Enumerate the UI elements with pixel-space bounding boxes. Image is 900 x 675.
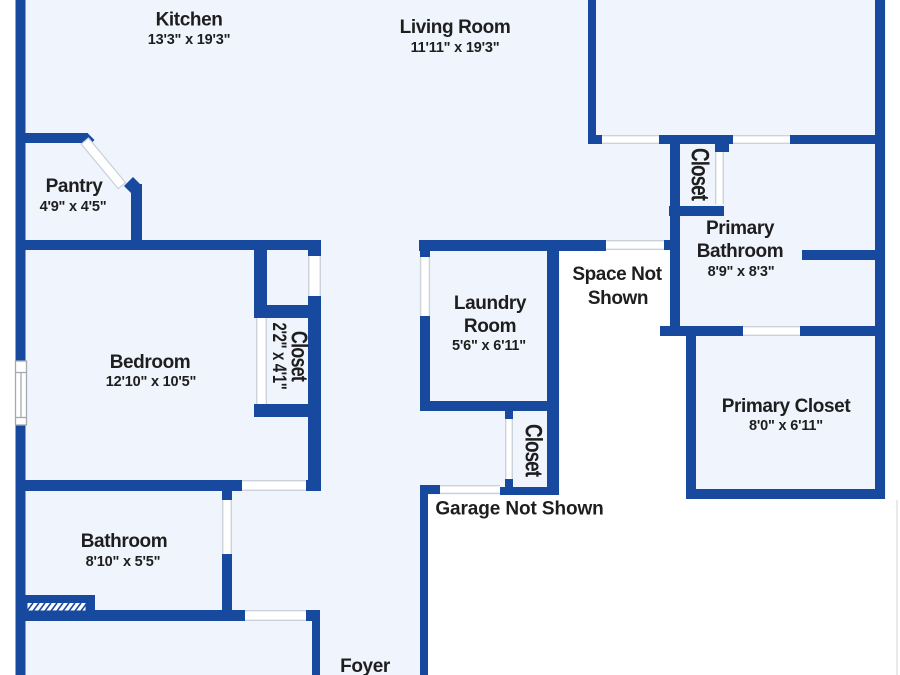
- svg-text:5'6" x 6'11": 5'6" x 6'11": [452, 338, 526, 354]
- svg-text:Foyer: Foyer: [340, 656, 391, 675]
- svg-text:Primary Closet: Primary Closet: [722, 396, 852, 417]
- svg-text:4'9" x 4'5": 4'9" x 4'5": [40, 199, 107, 215]
- svg-text:Primary: Primary: [706, 218, 775, 239]
- svg-text:Shown: Shown: [588, 288, 648, 309]
- svg-text:Bathroom: Bathroom: [697, 241, 784, 262]
- svg-text:Bedroom: Bedroom: [110, 352, 191, 373]
- svg-text:Living Room: Living Room: [400, 17, 511, 38]
- svg-text:Kitchen: Kitchen: [156, 10, 223, 31]
- svg-text:8'10" x 5'5": 8'10" x 5'5": [86, 554, 161, 570]
- svg-text:8'0" x 6'11": 8'0" x 6'11": [749, 418, 823, 434]
- svg-text:Pantry: Pantry: [46, 176, 104, 197]
- svg-text:2'2" x 4'1": 2'2" x 4'1": [268, 323, 290, 390]
- svg-text:Garage Not Shown: Garage Not Shown: [435, 499, 603, 520]
- svg-text:12'10" x 10'5": 12'10" x 10'5": [106, 374, 196, 390]
- svg-text:Bathroom: Bathroom: [81, 531, 168, 552]
- svg-text:Closet: Closet: [686, 148, 714, 202]
- svg-text:11'11" x 19'3": 11'11" x 19'3": [411, 40, 500, 56]
- svg-text:Space Not: Space Not: [572, 264, 662, 285]
- svg-text:8'9" x 8'3": 8'9" x 8'3": [708, 264, 775, 280]
- svg-text:13'3" x 19'3": 13'3" x 19'3": [148, 32, 231, 48]
- svg-text:Closet: Closet: [520, 424, 547, 477]
- svg-text:Laundry: Laundry: [454, 293, 527, 314]
- svg-text:Room: Room: [464, 316, 516, 337]
